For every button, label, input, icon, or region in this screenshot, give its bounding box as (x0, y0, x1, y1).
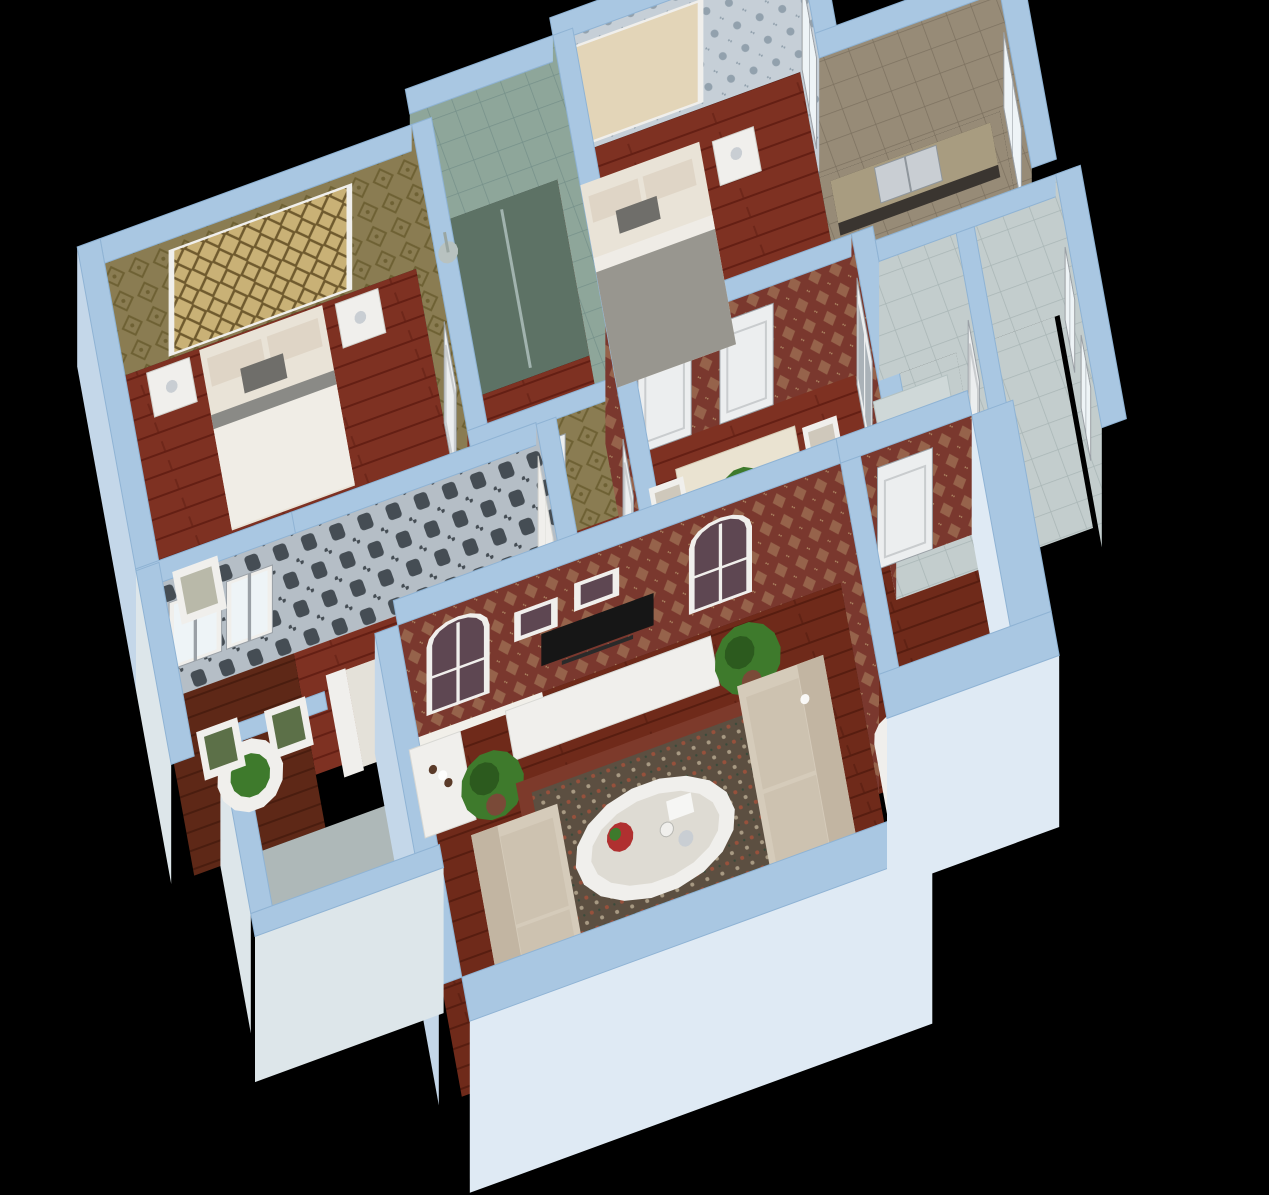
wall-bath-east-window-mullion (1086, 360, 1087, 436)
floorplan-3d-render (0, 0, 1269, 1195)
wall-kitchen-east-window-mullion (1012, 79, 1013, 158)
wall-tv-arch-mullion (456, 622, 459, 705)
wall-west-balcony-north-window-mullion (248, 573, 251, 642)
wall-bath-east-window-mullion (1070, 272, 1071, 348)
apartment-render-svg (0, 0, 1269, 1195)
wall-tv-arch-mullion (719, 523, 722, 604)
wall-bedroom2-east-window-mullion (809, 16, 810, 111)
